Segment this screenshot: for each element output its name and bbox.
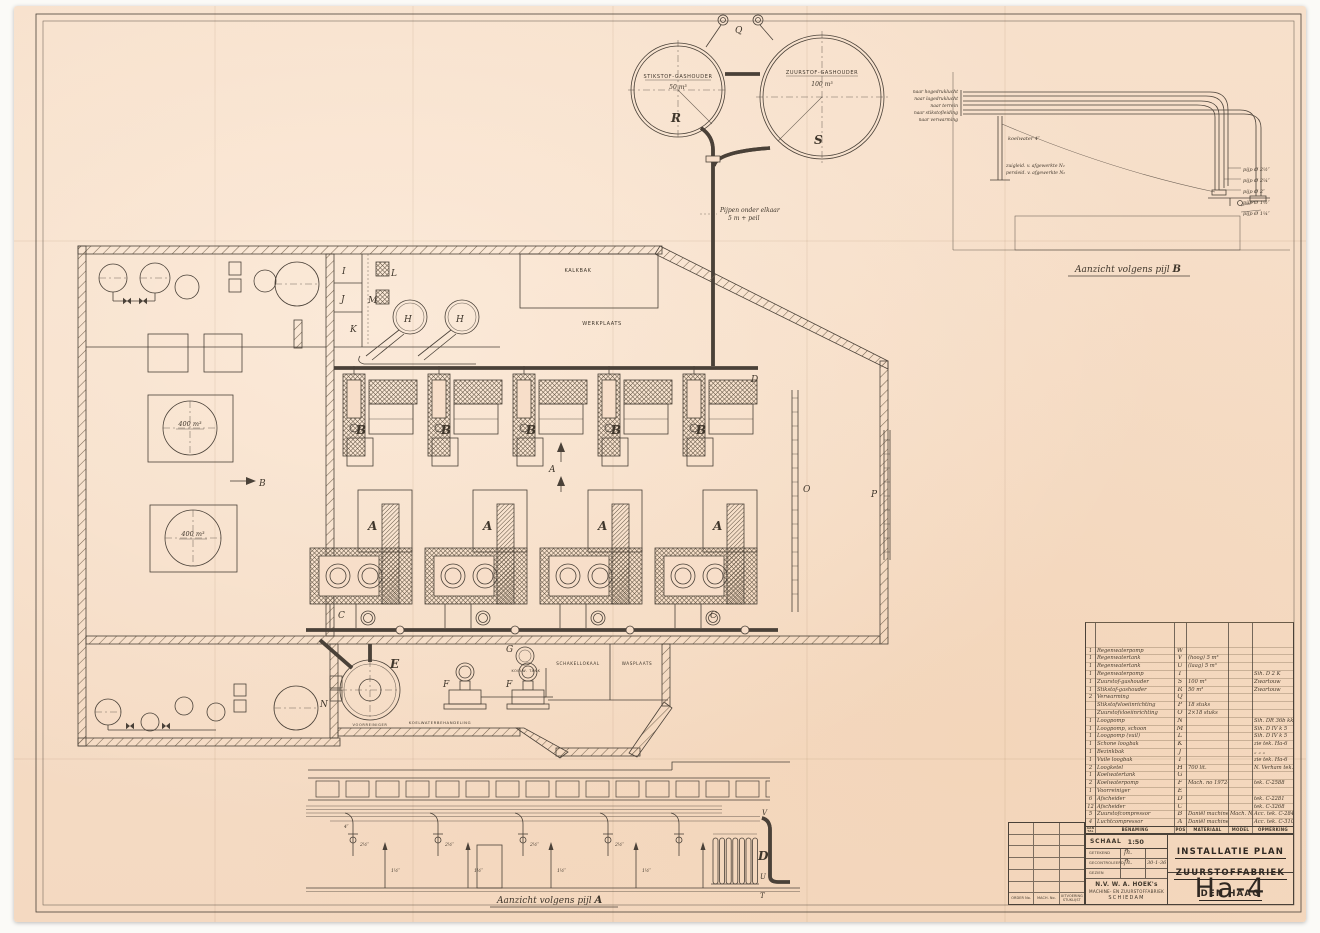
parts-list-row: 2LoogketelH700 lit.N. Verham tek. 204-E — [1086, 764, 1293, 772]
pipe-size-label: pijp Ø 2½″ — [1243, 166, 1270, 173]
parts-cell-benaming: Zuurstofvloeiinrichting — [1095, 710, 1174, 717]
parts-cell-model — [1228, 780, 1252, 787]
parts-list-header: AAN TAL BENAMING POS MATERIAAL MODEL No … — [1085, 826, 1294, 834]
signature2: fh. — [1120, 859, 1145, 868]
parts-cell-benaming: Stikstofvloeiinrichting — [1095, 702, 1174, 709]
view-arrow-b: B — [230, 477, 266, 489]
pipe-size: 1½″ — [391, 867, 400, 874]
parts-cell-aantal: 1 — [1086, 663, 1095, 670]
parts-cell-aantal: 1 — [1086, 687, 1095, 694]
parts-cell-pos: F — [1174, 780, 1186, 787]
parts-cell-model — [1228, 687, 1252, 694]
parts-cell-benaming: Loogpomp, schoon — [1095, 726, 1174, 733]
letter-S: S — [814, 133, 823, 147]
pipe-size: 2½″ — [359, 841, 369, 848]
parts-cell-materiaal: 2×18 stuks — [1186, 710, 1228, 717]
parts-cell-aantal — [1086, 710, 1095, 717]
parts-cell-opmerking: zie tek. Ha-6 — [1252, 741, 1293, 748]
parts-cell-aantal: 1 — [1086, 772, 1095, 779]
parts-cell-opmerking: Zwartouw — [1252, 679, 1293, 686]
signature: fh. — [1120, 849, 1145, 858]
parts-cell-opmerking: tek. C-3268 — [1252, 804, 1293, 811]
parts-cell-materiaal — [1186, 741, 1228, 748]
parts-cell-model — [1228, 749, 1252, 756]
parts-cell-materiaal — [1186, 733, 1228, 740]
parts-cell-opmerking: Zwartouw — [1252, 687, 1293, 694]
parts-list-row: 1RegenwatertankV(hoog) 5 m³ — [1086, 654, 1293, 662]
parts-list-row: 1VoorreinigerE — [1086, 787, 1293, 795]
letter-B: B — [355, 423, 366, 437]
parts-list-row: 1Stikstof-gashouderR50 m³Zwartouw — [1086, 686, 1293, 694]
parts-cell-opmerking: tek. C-2281 — [1252, 796, 1293, 803]
parts-cell-opmerking — [1252, 663, 1293, 670]
separator-battery — [711, 834, 759, 884]
schaal-value: 1:50 — [1128, 838, 1144, 846]
parts-cell-aantal: 2 — [1086, 780, 1095, 787]
company-block: N.V. W. A. HOEK's MACHINE- EN ZUURSTOFFA… — [1086, 879, 1167, 904]
parts-cell-pos: T — [1174, 671, 1186, 678]
parts-cell-materiaal: (hoog) 5 m³ — [1186, 655, 1228, 662]
parts-cell-pos: U — [1174, 663, 1186, 670]
parts-cell-opmerking: Sih. DR 36b kk 5 — [1252, 718, 1293, 725]
pipe-size-label: pijp Ø 1½″ — [1243, 199, 1270, 206]
parts-cell-aantal: 1 — [1086, 718, 1095, 725]
header-benaming: BENAMING — [1095, 827, 1174, 833]
pipe-size-label: pijp Ø 2¼″ — [1243, 177, 1270, 184]
parts-cell-pos: C — [1174, 804, 1186, 811]
parts-cell-opmerking: „ „ „ — [1252, 749, 1293, 756]
parts-cell-aantal: 1 — [1086, 671, 1095, 678]
letter-A: A — [482, 519, 492, 533]
parts-cell-pos: R — [1174, 687, 1186, 694]
parts-cell-model — [1228, 718, 1252, 725]
letter-G: G — [506, 645, 513, 655]
letter-V-section: V — [762, 809, 768, 817]
parts-list-row: 2VerwarmingQ — [1086, 693, 1293, 701]
letter-J: J — [339, 295, 346, 305]
header-materiaal: MATERIAAL — [1186, 827, 1228, 833]
letter-E: E — [389, 657, 400, 671]
letter-Q: Q — [735, 26, 743, 36]
room-schakellokaal: SCHAKELLOKAAL — [556, 661, 600, 666]
parts-cell-opmerking: Sih. D IV k 5 — [1252, 733, 1293, 740]
parts-cell-pos: I — [1174, 757, 1186, 764]
parts-cell-model: Mach. Nos — [1228, 811, 1252, 818]
section-a-letter: A — [548, 465, 556, 475]
parts-cell-benaming: Koelwatertank — [1095, 772, 1174, 779]
koelwaterbehandeling-label: KOELWATERBEHANDELING — [409, 720, 471, 725]
parts-list: 1RegenwaterpompW1RegenwatertankV(hoog) 5… — [1085, 622, 1294, 826]
parts-cell-opmerking — [1252, 772, 1293, 779]
parts-cell-pos: G — [1174, 772, 1186, 779]
letter-K: K — [349, 325, 358, 335]
parts-cell-model — [1228, 671, 1252, 678]
parts-cell-opmerking: Acc. tek. C-2846 — [1252, 811, 1293, 818]
parts-cell-model — [1228, 694, 1252, 701]
company-sub: MACHINE- EN ZUURSTOFFABRIEK — [1086, 889, 1167, 894]
parts-cell-materiaal — [1186, 648, 1228, 655]
letter-O: O — [803, 485, 811, 495]
parts-cell-benaming: Koelwaterpomp — [1095, 780, 1174, 787]
water-basins: 400 m³ 400 m³ B — [148, 395, 266, 572]
parts-cell-pos: H — [1174, 765, 1186, 772]
parts-cell-model — [1228, 733, 1252, 740]
parts-cell-aantal: 2 — [1086, 765, 1095, 772]
viewb-left-labels: naar hogedruklucht naar lagedruklucht na… — [913, 89, 958, 123]
loog-room: I J K L M H H KALKBAK WERKPLAATS — [339, 254, 622, 364]
parts-list-row: 1RegenwaterpompW — [1086, 647, 1293, 655]
pipe-dest-label: naar stikstofleiding — [914, 110, 958, 116]
air-compressors-A: A A A A C C — [306, 490, 778, 634]
letter-L: L — [390, 269, 397, 279]
parts-cell-materiaal — [1186, 726, 1228, 733]
view-arrow-b-letter: B — [258, 479, 266, 489]
letter-T-section: T — [760, 892, 766, 900]
parts-cell-materiaal: Mach. no 1972-1973 — [1186, 780, 1228, 787]
parts-cell-materiaal — [1186, 671, 1228, 678]
drawing-number: Ha-4 — [1168, 873, 1293, 904]
parts-list-row: 5ZuurstofcompressorBDaniël machinesMach.… — [1086, 810, 1293, 818]
basin1-capacity: 400 m³ — [177, 420, 202, 428]
pipe-dest-label: naar verwarming — [919, 117, 958, 123]
gecontroleerd-label: GECONTROLEERD — [1086, 859, 1120, 868]
parts-cell-benaming: Zuurstofcompressor — [1095, 811, 1174, 818]
letter-B: B — [440, 423, 451, 437]
letter-A: A — [367, 519, 377, 533]
parts-cell-opmerking: zie tek. Ha-6 — [1252, 757, 1293, 764]
letter-H: H — [403, 315, 412, 325]
parts-cell-model — [1228, 726, 1252, 733]
parts-cell-benaming: Schone loogbak — [1095, 741, 1174, 748]
parts-cell-materiaal — [1186, 718, 1228, 725]
parts-cell-benaming: Vuile loogbak — [1095, 757, 1174, 764]
parts-cell-aantal: 12 — [1086, 804, 1095, 811]
parts-cell-pos: K — [1174, 741, 1186, 748]
liquefier-chains: O P — [792, 390, 890, 612]
company-name: N.V. W. A. HOEK's — [1086, 882, 1167, 888]
gezien-label: GEZIEN — [1086, 869, 1120, 878]
letter-B: B — [695, 423, 706, 437]
parts-cell-model — [1228, 702, 1252, 709]
drawing-title: INSTALLATIE PLAN ZUURSTOFFABRIEK DEN HAA… — [1168, 835, 1293, 873]
letter-H: H — [455, 315, 464, 325]
parts-list-row: StikstofvloeiinrichtingP18 stuks — [1086, 701, 1293, 709]
parts-cell-opmerking: Acc. tek. C-3105 — [1252, 819, 1293, 826]
parts-list-row: 12AfscheiderCtek. C-3268 — [1086, 803, 1293, 811]
letter-U-section: U — [760, 873, 767, 881]
parts-list-row: 1Schone loogbakKzie tek. Ha-6 — [1086, 740, 1293, 748]
pipe-size: 1½″ — [557, 867, 566, 874]
parts-cell-pos: E — [1174, 788, 1186, 795]
header-model: MODEL No — [1228, 827, 1252, 833]
parts-cell-aantal: 1 — [1086, 679, 1095, 686]
pipe-dest-label: naar lagedruklucht — [914, 96, 958, 102]
parts-cell-benaming: Verwarming — [1095, 694, 1174, 701]
parts-list-row: 1Zuurstof-gashouderS100 m³Zwartouw — [1086, 678, 1293, 686]
letter-C: C — [338, 611, 345, 621]
pipe-size: 2½″ — [614, 841, 624, 848]
parts-cell-benaming: Stikstof-gashouder — [1095, 687, 1174, 694]
parts-cell-benaming: Luchtcompressor — [1095, 819, 1174, 826]
parts-list-row: 1Loogpomp, schoonMSih. D IV k 5 — [1086, 725, 1293, 733]
letter-A: A — [712, 519, 722, 533]
parts-cell-materiaal — [1186, 749, 1228, 756]
date: 30-1-36 — [1145, 859, 1167, 868]
parts-cell-materiaal — [1186, 757, 1228, 764]
pipe-size: 1½″ — [474, 867, 483, 874]
parts-cell-model — [1228, 819, 1252, 826]
view-b-detail: koelwater 4″ zuigleid. v. afgewerkte N₂ … — [913, 72, 1290, 276]
parts-cell-aantal: 6 — [1086, 796, 1095, 803]
letter-D-section: D — [757, 849, 769, 863]
parts-cell-aantal: 1 — [1086, 757, 1095, 764]
nitrogen-holder-label: STIKSTOF-GASHOUDER — [643, 74, 712, 80]
parts-cell-aantal — [1086, 702, 1095, 709]
schaal-label: SCHAAL — [1090, 838, 1122, 845]
parts-list-row: 1Vuile loogbakIzie tek. Ha-6 — [1086, 756, 1293, 764]
nitrogen-holder-capacity: 50 m³ — [669, 84, 687, 91]
parts-cell-pos: O — [1174, 710, 1186, 717]
viewb-note-2: persleid. v. afgewerkte N₂ — [1006, 170, 1065, 176]
parts-cell-opmerking — [1252, 702, 1293, 709]
parts-cell-model — [1228, 804, 1252, 811]
parts-cell-materiaal — [1186, 804, 1228, 811]
parts-cell-benaming: Regenwatertank — [1095, 663, 1174, 670]
parts-cell-materiaal: 50 m³ — [1186, 687, 1228, 694]
support-pipe-label: koelwater 4″ — [1008, 136, 1040, 142]
parts-list-row: 6AfscheiderDtek. C-2281 — [1086, 795, 1293, 803]
pipe-note-2: 5 m + peil — [728, 215, 760, 222]
pump-yard-top — [99, 262, 319, 372]
parts-cell-materiaal: 100 m³ — [1186, 679, 1228, 686]
parts-cell-model — [1228, 663, 1252, 670]
view-a-caption: Aanzicht volgens pijl A — [496, 895, 603, 906]
parts-cell-model — [1228, 679, 1252, 686]
parts-cell-aantal: 1 — [1086, 648, 1095, 655]
parts-cell-aantal: 1 — [1086, 733, 1095, 740]
gas-holders: STIKSTOF-GASHOUDER 50 m³ R ZUURSTOF-GASH… — [628, 15, 888, 366]
title-block: SCHAAL 1:50 GETEKEND fh. GECONTROLEERD f… — [1085, 834, 1294, 905]
pump-yard-bottom — [95, 684, 318, 731]
viewb-note-1: zuigleid. v. afgewerkte N₂ — [1005, 163, 1065, 169]
parts-cell-materiaal — [1186, 694, 1228, 701]
parts-cell-materiaal: (laag) 5 m³ — [1186, 663, 1228, 670]
koelw-tank-label: KOELW. TANK — [511, 669, 540, 673]
parts-cell-aantal: 1 — [1086, 655, 1095, 662]
parts-cell-benaming: Zuurstof-gashouder — [1095, 679, 1174, 686]
parts-cell-pos: V — [1174, 655, 1186, 662]
parts-cell-materiaal: 18 stuks — [1186, 702, 1228, 709]
pipe-dest-label: naar terrein — [930, 103, 958, 109]
letter-I: I — [341, 267, 346, 277]
parts-cell-benaming: Loogketel — [1095, 765, 1174, 772]
room-kalkbak: KALKBAK — [564, 268, 591, 274]
parts-cell-model — [1228, 788, 1252, 795]
letter-C: C — [710, 611, 717, 621]
parts-cell-model — [1228, 655, 1252, 662]
parts-cell-pos: S — [1174, 679, 1186, 686]
pipe-size: 1½″ — [642, 867, 651, 874]
room-wasplaats: WASPLAATS — [622, 661, 653, 666]
parts-cell-pos: P — [1174, 702, 1186, 709]
parts-cell-pos: Q — [1174, 694, 1186, 701]
parts-cell-pos: D — [1174, 796, 1186, 803]
parts-cell-opmerking — [1252, 694, 1293, 701]
parts-cell-pos: L — [1174, 733, 1186, 740]
parts-cell-model — [1228, 648, 1252, 655]
parts-cell-aantal: 2 — [1086, 694, 1095, 701]
parts-cell-aantal: 1 — [1086, 788, 1095, 795]
parts-cell-benaming: Regenwaterpomp — [1095, 671, 1174, 678]
parts-cell-opmerking: Sih. D 2 K — [1252, 671, 1293, 678]
parts-cell-benaming: Loogpomp — [1095, 718, 1174, 725]
pipe-size: 2½″ — [529, 841, 539, 848]
title-line-1: INSTALLATIE PLAN — [1175, 847, 1286, 859]
header-pos: POS — [1174, 827, 1186, 833]
parts-list-row: 1RegenwaterpompTSih. D 2 K — [1086, 670, 1293, 678]
parts-cell-aantal: 1 — [1086, 726, 1095, 733]
parts-cell-opmerking — [1252, 710, 1293, 717]
parts-list-row: 1BezinkbakJ„ „ „ — [1086, 748, 1293, 756]
parts-cell-benaming: Afscheider — [1095, 796, 1174, 803]
basin2-capacity: 400 m³ — [180, 530, 205, 538]
parts-list-row: 1LoogpompNSih. DR 36b kk 5 — [1086, 717, 1293, 725]
letter-M: M — [367, 296, 378, 306]
building-walls — [78, 246, 888, 758]
letter-D: D — [750, 375, 758, 385]
pipe-size-label: pijp Ø 1¼″ — [1243, 210, 1270, 217]
parts-cell-model — [1228, 757, 1252, 764]
parts-cell-opmerking: tek. C-2588 — [1252, 780, 1293, 787]
parts-cell-aantal: 1 — [1086, 749, 1095, 756]
parts-list-row: 1RegenwatertankU(laag) 5 m³ — [1086, 662, 1293, 670]
header-aantal: AAN TAL — [1086, 827, 1095, 833]
cooling-water-room: E VOORREINIGER N F F G KOELW. TANK KOELW… — [319, 640, 652, 727]
mach-no-label: MACH. No. — [1033, 893, 1058, 904]
parts-cell-opmerking — [1252, 788, 1293, 795]
letter-R: R — [670, 111, 681, 125]
oxygen-holder-capacity: 100 m³ — [811, 81, 833, 88]
parts-cell-pos: W — [1174, 648, 1186, 655]
parts-list-row: 1Loogpomp (vuil)LSih. D IV k 5 — [1086, 732, 1293, 740]
parts-cell-benaming: Bezinkbak — [1095, 749, 1174, 756]
parts-cell-opmerking: N. Verham tek. 204-E — [1252, 765, 1293, 772]
parts-cell-aantal: 4 — [1086, 819, 1095, 826]
parts-cell-materiaal — [1186, 772, 1228, 779]
parts-cell-materiaal: Daniël machine — [1186, 819, 1228, 826]
parts-cell-pos: B — [1174, 811, 1186, 818]
parts-cell-model — [1228, 710, 1252, 717]
oxygen-compressors-B: B B B B B D — [334, 366, 758, 466]
parts-cell-pos: M — [1174, 726, 1186, 733]
letter-A: A — [597, 519, 607, 533]
view-b-caption: Aanzicht volgens pijl B — [1074, 264, 1181, 275]
parts-cell-opmerking: Sih. D IV k 5 — [1252, 726, 1293, 733]
parts-cell-opmerking — [1252, 655, 1293, 662]
parts-cell-pos: N — [1174, 718, 1186, 725]
parts-cell-benaming: Regenwaterpomp — [1095, 648, 1174, 655]
parts-list-row: 4LuchtcompressorADaniël machineAcc. tek.… — [1086, 818, 1293, 826]
voorreiniger-label: VOORREINIGER — [353, 723, 388, 727]
parts-cell-pos: A — [1174, 819, 1186, 826]
oxygen-holder-label: ZUURSTOF-GASHOUDER — [786, 70, 858, 76]
parts-cell-benaming: Regenwatertank — [1095, 655, 1174, 662]
parts-cell-model — [1228, 796, 1252, 803]
parts-cell-benaming: Afscheider — [1095, 804, 1174, 811]
parts-cell-opmerking — [1252, 648, 1293, 655]
parts-cell-benaming: Voorreiniger — [1095, 788, 1174, 795]
parts-cell-benaming: Loogpomp (vuil) — [1095, 733, 1174, 740]
order-no-label: ORDER No. — [1009, 893, 1033, 904]
parts-cell-model — [1228, 741, 1252, 748]
parts-list-row: 1KoelwatertankG — [1086, 771, 1293, 779]
room-werkplaats: WERKPLAATS — [582, 321, 622, 327]
parts-list-row: 2KoelwaterpompFMach. no 1972-1973tek. C-… — [1086, 779, 1293, 787]
pipe-size: 4″ — [343, 824, 349, 830]
parts-cell-materiaal — [1186, 788, 1228, 795]
pipe-size-label: pijp Ø 2″ — [1243, 188, 1265, 195]
letter-P: P — [870, 490, 878, 500]
view-a-section: 4″ 2½″ 2½″ 2½″ 2½″ 1½″ 1½″ 1½″ 1½″ D V U… — [306, 762, 800, 907]
pipe-dest-label: naar hogedruklucht — [913, 89, 958, 95]
parts-cell-pos: J — [1174, 749, 1186, 756]
parts-list-row: ZuurstofvloeiinrichtingO2×18 stuks — [1086, 709, 1293, 717]
company-city: SCHIEDAM — [1086, 895, 1167, 901]
uitvoering-label: UITVOERING STUKLIJST — [1059, 893, 1084, 904]
parts-cell-materiaal: 700 lit. — [1186, 765, 1228, 772]
letter-B: B — [525, 423, 536, 437]
letter-F: F — [505, 680, 513, 690]
parts-cell-model — [1228, 772, 1252, 779]
letter-F: F — [442, 680, 450, 690]
pipe-size: 2½″ — [444, 841, 454, 848]
section-marker-A: A — [548, 442, 565, 492]
parts-cell-materiaal — [1186, 796, 1228, 803]
parts-cell-model — [1228, 765, 1252, 772]
getekend-label: GETEKEND — [1086, 849, 1120, 858]
header-opmerking: OPMERKING — [1252, 827, 1293, 833]
parts-cell-aantal: 1 — [1086, 741, 1095, 748]
letter-B: B — [610, 423, 621, 437]
letter-N: N — [319, 700, 329, 710]
revision-grid: ORDER No. MACH. No. UITVOERING STUKLIJST — [1008, 822, 1085, 905]
viewb-right-labels: pijp Ø 2½″ pijp Ø 2¼″ pijp Ø 2″ pijp Ø 1… — [1219, 166, 1270, 217]
pipe-note-1: Pijpen onder elkaar — [719, 207, 781, 214]
parts-cell-aantal: 5 — [1086, 811, 1095, 818]
parts-cell-materiaal: Daniël machines — [1186, 811, 1228, 818]
